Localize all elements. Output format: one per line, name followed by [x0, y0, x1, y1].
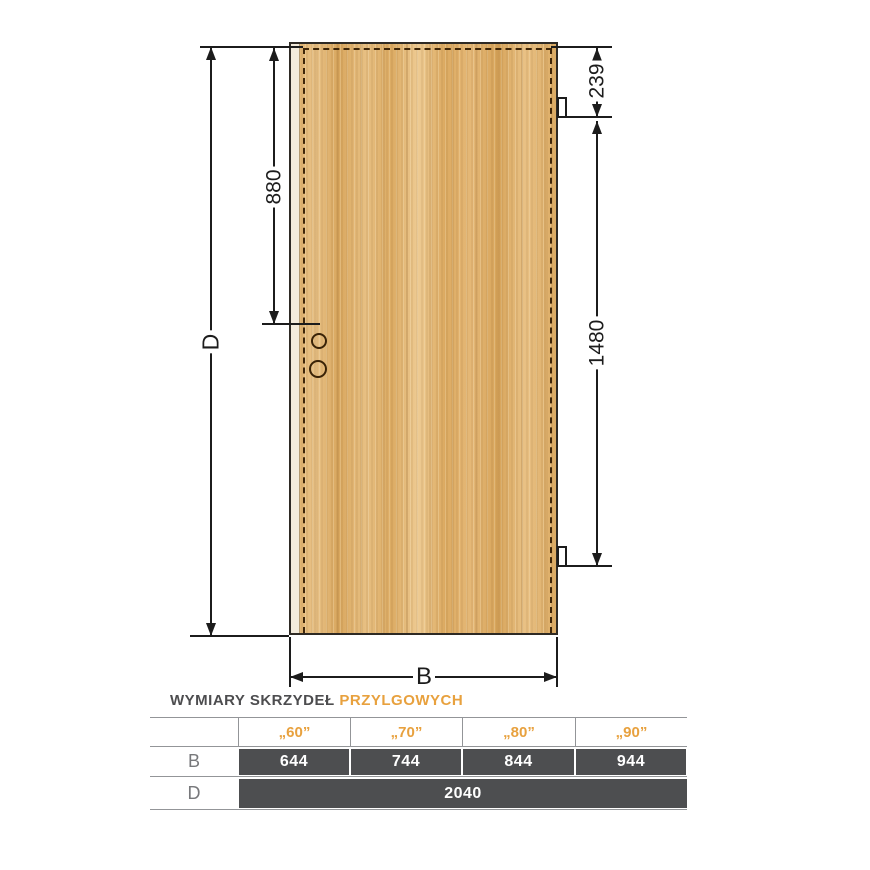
value-b-80: 844: [462, 747, 575, 777]
rebate-dash-line-right: [550, 48, 552, 633]
rebate-dash-line-left: [303, 48, 305, 633]
arrowhead-1480-top: [592, 121, 602, 134]
value-b-70: 744: [350, 747, 462, 777]
value-b-60: 644: [238, 747, 350, 777]
column-header-60: „60”: [238, 718, 350, 747]
door-leaf-drawing: [289, 42, 558, 635]
arrowhead-d-top: [206, 47, 216, 60]
arrowhead-1480-bottom: [592, 553, 602, 566]
value-b-90: 944: [575, 747, 687, 777]
lock-hole-lower: [309, 360, 327, 378]
value-d-all: 2040: [238, 777, 687, 809]
extension-line-hinge-top: [557, 116, 612, 118]
size-table: „60” „70” „80” „90” B 644 744 844 944 D …: [150, 717, 687, 810]
dimension-label-1480: 1480: [585, 317, 610, 370]
dimension-label-d: D: [198, 331, 225, 354]
dimension-label-b: B: [413, 663, 435, 691]
arrowhead-880-top: [269, 48, 279, 61]
rebate-dash-line-top: [303, 48, 552, 50]
dimension-label-239: 239: [585, 60, 610, 101]
extension-line-bottom-left: [190, 635, 289, 637]
arrowhead-239-top: [592, 48, 602, 61]
door-dimension-sheet: D 880 239 1480 B WYMIARY SKRZYDEŁ PRZYLG…: [0, 0, 870, 870]
column-header-80: „80”: [462, 718, 575, 747]
column-header-70: „70”: [350, 718, 462, 747]
table-title-main: WYMIARY SKRZYDEŁ: [170, 692, 335, 709]
lock-hole-upper: [311, 333, 327, 349]
arrowhead-b-left: [290, 672, 303, 682]
dimension-label-880: 880: [262, 166, 287, 207]
extension-line-top-right: [551, 46, 612, 48]
arrowhead-b-right: [544, 672, 557, 682]
table-title: WYMIARY SKRZYDEŁ PRZYLGOWYCH: [170, 692, 463, 709]
column-header-90: „90”: [575, 718, 687, 747]
size-table-corner-cell: [150, 718, 238, 747]
row-label-b: B: [150, 747, 238, 777]
arrowhead-d-bottom: [206, 623, 216, 636]
arrowhead-239-bottom: [592, 104, 602, 117]
arrowhead-880-bottom: [269, 311, 279, 324]
hinge-bottom: [557, 546, 567, 567]
row-label-d: D: [150, 777, 238, 809]
table-title-accent: PRZYLGOWYCH: [339, 692, 463, 709]
door-edge-strip: [291, 44, 300, 633]
extension-line-hinge-bottom: [557, 565, 612, 567]
hinge-top: [557, 97, 567, 118]
